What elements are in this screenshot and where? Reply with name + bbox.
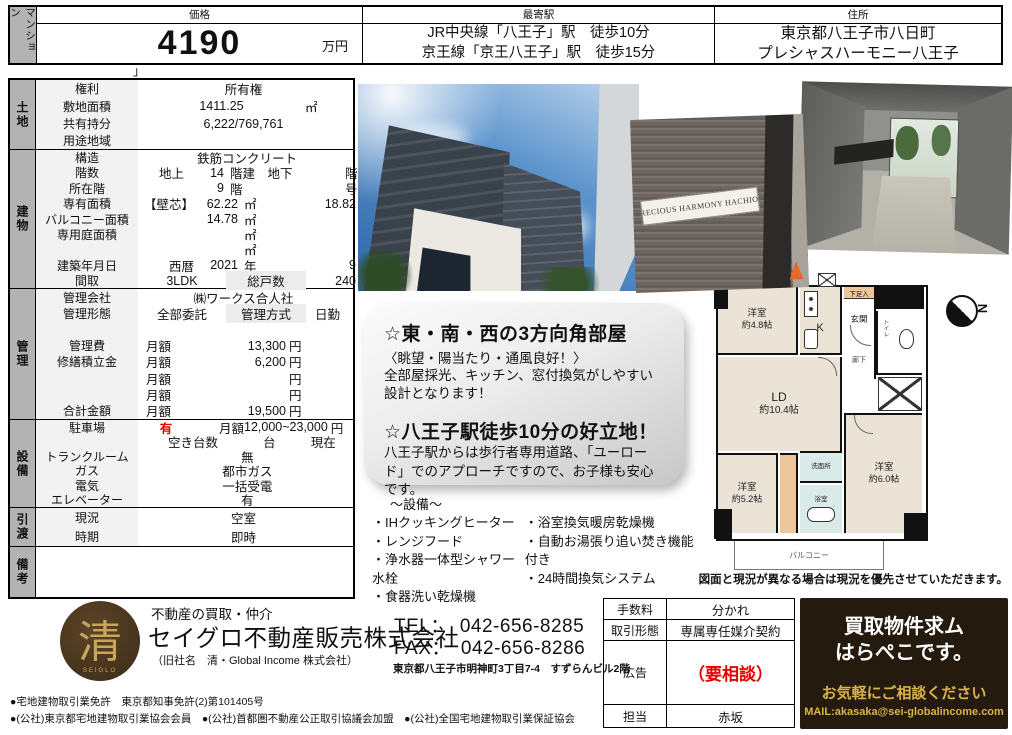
traffic-cone [789, 261, 804, 279]
private-garden-label: 専用庭面積 [36, 227, 138, 242]
bathroom-label: 浴室 [815, 496, 828, 504]
lobby-greenery [931, 125, 951, 156]
floor-plan-disclaimer: 図面と現況が異なる場合は現況を優先させていただきます。 [640, 571, 1008, 587]
equipment-left-column: ・IHクッキングヒーター ・レンジフード ・浄水器一体型シャワー水栓 ・食器洗い… [372, 514, 525, 606]
section-remarks-header: 備考 [10, 547, 36, 597]
price-value: 4190 [158, 24, 242, 63]
electricity-label: 電気 [36, 478, 138, 493]
bedroom-60-label: 洋室 [874, 462, 893, 474]
located-floor-label: 所在階 [36, 181, 138, 196]
land-zoning-label: 用途地域 [36, 132, 138, 149]
mgmt-company-label: 管理会社 [36, 289, 138, 305]
section-management-header: 管理 [10, 289, 36, 419]
section-facility: 設備 駐車場 有月額12,000~23,000円 空き台数台現在 トランクルーム… [10, 420, 353, 508]
window-hatch [818, 273, 836, 287]
section-building-header: 建物 [10, 150, 36, 288]
address-column: 住所 東京都八王子市八日町 プレシャスハーモニー八王子 [715, 7, 1001, 63]
structure-label: 構造 [36, 150, 138, 165]
toilet-label: トイレ [881, 319, 890, 337]
price-cell: 4190 万円 [37, 24, 362, 63]
storage-hatch [878, 377, 922, 411]
section-handover: 引渡 現況 空室 時期 即時 [10, 508, 353, 547]
section-handover-header: 引渡 [10, 508, 36, 546]
layout-label: 間取 [36, 273, 138, 288]
lobby-left-wall [798, 81, 866, 251]
floors-above-value: 14 [184, 166, 224, 180]
sink-icon [804, 329, 818, 349]
fee-value: 分かれ [667, 599, 794, 619]
elevator-label: エレベーター [36, 493, 138, 508]
entrance-label: 玄関 [844, 313, 874, 325]
layout-value: 3LDK [138, 274, 226, 288]
address-cell: 東京都八王子市八日町 プレシャスハーモニー八王子 [715, 24, 1001, 64]
exclusive-area-value: 62.22 [194, 197, 238, 211]
balcony-area-label: バルコニー面積 [36, 211, 138, 226]
address-line-2: プレシャスハーモニー八王子 [757, 44, 959, 64]
lobby-photo [798, 81, 1012, 254]
land-area-label: 敷地面積 [36, 98, 138, 116]
section-management: 管理 管理会社 ㈱ワークス合人社 管理形態 全部委託管理方式日勤 管理費 月額1… [10, 289, 353, 420]
contact-phone-block: TEL： 042-656-8285 FAX： 042-656-8286 [394, 616, 585, 661]
balcony-area-value: 14.78 [194, 212, 238, 226]
deal-type-label: 取引形態 [604, 620, 667, 640]
closet [780, 453, 798, 533]
total-fee-value: 19,500 [192, 404, 286, 418]
balcony-area: バルコニー [734, 541, 884, 570]
equipment-item: ・浴室換気暖房乾燥機 [525, 514, 702, 532]
equipment-item: ・IHクッキングヒーター [372, 514, 525, 532]
equipment-right-column: ・浴室換気暖房乾燥機 ・自動お湯張り追い焚き機能付き ・24時間換気システム [525, 514, 702, 606]
feature-heading-1: ☆東・南・西の3方向角部屋 [384, 319, 664, 346]
header-table: マンション 価格 4190 万円 最寄駅 JR中央線「八王子」駅 徒歩10分 京… [8, 5, 1003, 65]
washroom: 洗面所 [800, 451, 842, 483]
ad-value: （要相談） [667, 641, 794, 704]
compass-icon [946, 295, 978, 327]
station-header: 最寄駅 [363, 7, 714, 24]
feature-body-1: 全部屋採光、キッチン、窓付換気がしやすい設計となります！ [384, 367, 664, 403]
section-land: 土地 権利 所有権 敷地面積 1411.25㎡ 共有持分 6,222/769,7… [10, 80, 353, 150]
washroom-label: 洗面所 [811, 463, 831, 471]
stove-icon [804, 291, 818, 317]
exclusive-area-tsubo: 18.82 [306, 197, 356, 211]
mgmt-method-value: 日勤 [306, 304, 349, 323]
parking-label: 駐車場 [36, 420, 138, 435]
living-dining-label: LD [771, 390, 786, 405]
section-building: 建物 構造 鉄筋コンクリート造 階数 地上14階建 地下階建 所在階 9階号室 … [10, 150, 353, 289]
deal-terms-table: 手数料 分かれ 取引形態 専属専任媒介契約 広告 （要相談） 担当 赤坂 [603, 598, 795, 728]
built-year-value: 2021 [194, 258, 238, 272]
address-header: 住所 [715, 7, 1001, 24]
bedroom-52-label: 洋室 [737, 482, 756, 494]
timing-label: 時期 [36, 527, 138, 546]
bedroom-48-size: 約4.8帖 [742, 320, 773, 331]
current-state-value: 空室 [138, 508, 349, 527]
feature-subheading-1: 〈眺望・陽当たり・通風良好！〉 [384, 347, 664, 367]
repair-fund-label: 修繕積立金 [36, 354, 138, 370]
feature-heading-2: ☆八王子駅徒歩10分の好立地！ [384, 417, 664, 444]
pillar [876, 285, 924, 309]
station-cell: JR中央線「八王子」駅 徒歩10分 京王線「京王八王子」駅 徒歩15分 [363, 24, 714, 63]
section-land-header: 土地 [10, 80, 36, 149]
lobby-right-wall [954, 85, 1012, 254]
promo-line-3: お気軽にご相談ください [822, 682, 987, 703]
scan-artifact: 」 [133, 62, 145, 79]
staff-label: 担当 [604, 705, 667, 727]
mgmt-form-label: 管理形態 [36, 305, 138, 321]
office-address: 東京都八王子市明神町3丁目7-4 すずらんビル2階 [393, 661, 630, 676]
exterior-photo [358, 84, 639, 291]
balcony-label: バルコニー [789, 550, 829, 561]
shoe-closet-label: 下足入 [844, 287, 874, 299]
lobby-greenery [895, 126, 919, 160]
station-line-2: 京王線「京王八王子」駅 徒歩15分 [422, 44, 656, 63]
land-rights-value: 所有権 [138, 79, 349, 98]
company-former-name: （旧社名 清・Global Income 株式会社） [152, 652, 358, 668]
pillar [904, 513, 926, 539]
land-area-value: 1411.25 [138, 99, 305, 113]
floor-plan: 洋室 約4.8帖 K 下足入 玄関 廊下 トイレ LD 約10.4帖 [700, 283, 1012, 575]
equipment-list: 〜設備〜 ・IHクッキングヒーター ・レンジフード ・浄水器一体型シャワー水栓 … [372, 496, 702, 607]
greenery [529, 267, 609, 291]
timing-value: 即時 [138, 527, 349, 546]
trunk-label: トランクルーム [36, 449, 138, 464]
toilet-room: トイレ [876, 311, 922, 375]
logo-roman-name: SEIGLO [60, 668, 140, 674]
price-unit: 万円 [322, 36, 348, 55]
sign-photo: PRECIOUS HARMONY HACHIOJI [630, 114, 809, 293]
floor-plan-outline: 洋室 約4.8帖 K 下足入 玄関 廊下 トイレ LD 約10.4帖 [716, 285, 928, 541]
land-area-unit: ㎡ [305, 97, 349, 116]
equipment-item: ・自動お湯張り追い焚き機能付き [525, 533, 702, 570]
total-units-value: 240 [306, 274, 356, 288]
section-facility-header: 設備 [10, 420, 36, 507]
floors-label: 階数 [36, 165, 138, 180]
compass-north-letter: N [975, 304, 990, 313]
repair-fund-value: 6,200 [192, 355, 286, 369]
price-column: 価格 4190 万円 [37, 7, 363, 63]
bedroom-52-size: 約5.2帖 [732, 494, 763, 505]
elevator-value: 有 [138, 490, 357, 509]
land-share-value: 6,222/769,761 [138, 117, 349, 131]
total-fee-label: 合計金額 [36, 403, 138, 419]
located-floor-value: 9 [184, 181, 224, 195]
greenery [358, 251, 418, 291]
tel-number: TEL： 042-656-8285 [394, 616, 585, 638]
promo-mail: MAIL:akasaka@sei-globalincome.com [804, 706, 1004, 718]
living-dining-size: 約10.4帖 [759, 405, 798, 418]
bedroom-60-size: 約6.0帖 [869, 474, 900, 485]
bedroom-48-label: 洋室 [747, 308, 766, 320]
toilet-icon [899, 329, 914, 349]
current-state-label: 現況 [36, 508, 138, 527]
mgmt-method-label: 管理方式 [226, 304, 306, 323]
promo-banner: 買取物件求ム はらぺこです。 お気軽にご相談ください MAIL:akasaka@… [800, 598, 1008, 729]
bathroom: 浴室 [800, 485, 842, 533]
feature-body-2: 八王子駅からは歩行者専用道路、「ユーロード」でのアプローチですので、お子様も安心… [384, 444, 664, 499]
property-flyer: マンション 価格 4190 万円 最寄駅 JR中央線「八王子」駅 徒歩10分 京… [0, 0, 1012, 735]
license-line-1: ●宅地建物取引業免許 東京都知事免許(2)第101405号 [10, 694, 264, 709]
company-logo: 清 SEIGLO [60, 601, 140, 681]
building-name-plaque: PRECIOUS HARMONY HACHIOJI [640, 187, 760, 226]
equipment-title: 〜設備〜 [390, 496, 702, 514]
category-vertical-label: マンション [10, 7, 37, 63]
mgmt-fee-value: 13,300 [192, 339, 286, 353]
corridor-label: 廊下 [844, 355, 874, 365]
mgmt-form-value: 全部委託 [138, 304, 226, 323]
station-column: 最寄駅 JR中央線「八王子」駅 徒歩10分 京王線「京王八王子」駅 徒歩15分 [363, 7, 715, 63]
exclusive-area-label: 専有面積 [36, 196, 138, 211]
equipment-item: ・レンジフード [372, 533, 525, 551]
price-header: 価格 [37, 7, 362, 24]
land-rights-label: 権利 [36, 80, 138, 98]
land-share-label: 共有持分 [36, 115, 138, 132]
logo-kanji: 清 [78, 606, 122, 670]
ad-label: 広告 [604, 641, 667, 704]
fee-label: 手数料 [604, 599, 667, 619]
bedroom-48-room: 洋室 約4.8帖 [718, 287, 798, 355]
fax-number: FAX： 042-656-8286 [394, 638, 585, 660]
built-month-value: 9 [306, 258, 356, 272]
address-line-1: 東京都八王子市八日町 [780, 24, 935, 44]
license-line-2: ●(公社)東京都宅地建物取引業協会会員 ●(公社)首都圏不動産公正取引協議会加盟… [10, 711, 575, 726]
deal-type-value: 専属専任媒介契約 [667, 620, 794, 640]
pillar [714, 509, 732, 539]
station-line-1: JR中央線「八王子」駅 徒歩10分 [427, 24, 649, 43]
bathtub-icon [807, 507, 835, 522]
built-date-label: 建築年月日 [36, 257, 138, 272]
equipment-item: ・食器洗い乾燥機 [372, 588, 525, 606]
sales-point-box: ☆東・南・西の3方向角部屋 〈眺望・陽当たり・通風良好！〉 全部屋採光、キッチン… [364, 303, 684, 485]
spec-table: 土地 権利 所有権 敷地面積 1411.25㎡ 共有持分 6,222/769,7… [8, 78, 355, 599]
equipment-item: ・浄水器一体型シャワー水栓 [372, 551, 525, 588]
gas-label: ガス [36, 464, 138, 479]
promo-line-2: はらぺこです。 [835, 640, 973, 666]
mgmt-fee-label: 管理費 [36, 338, 138, 354]
staff-value: 赤坂 [667, 705, 794, 727]
lobby-floor [872, 176, 958, 254]
section-remarks: 備考 [10, 547, 353, 597]
promo-line-1: 買取物件求ム [844, 614, 964, 640]
